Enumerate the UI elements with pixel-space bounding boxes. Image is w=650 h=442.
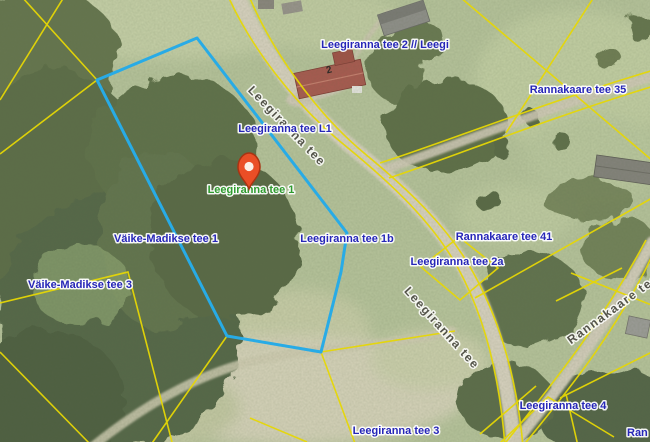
- label-rannakaare-tee-35: Rannakaare tee 35: [530, 84, 627, 96]
- label-leegiranna-tee-2-leegi: Leegiranna tee 2 // Leegi: [321, 39, 449, 51]
- label-vaike-madikse-tee-1: Väike-Madikse tee 1: [114, 233, 218, 245]
- aerial-map[interactable]: Leegiranna tee Leegiranna tee Rannakaare…: [0, 0, 650, 442]
- label-leegiranna-tee-2a: Leegiranna tee 2a: [411, 256, 505, 268]
- label-leegiranna-tee-l1: Leegiranna tee L1: [238, 123, 332, 135]
- map-canvas[interactable]: Leegiranna tee Leegiranna tee Rannakaare…: [0, 0, 650, 442]
- label-leegiranna-tee-4: Leegiranna tee 4: [520, 400, 608, 412]
- label-vaike-madikse-tee-3: Väike-Madikse tee 3: [28, 279, 132, 291]
- label-leegiranna-tee-3: Leegiranna tee 3: [353, 425, 440, 437]
- label-rannakaare-truncated: Ran: [627, 427, 648, 439]
- label-leegiranna-tee-1b: Leegiranna tee 1b: [300, 233, 394, 245]
- marker-hole: [244, 162, 253, 171]
- label-rannakaare-tee-41: Rannakaare tee 41: [456, 231, 553, 243]
